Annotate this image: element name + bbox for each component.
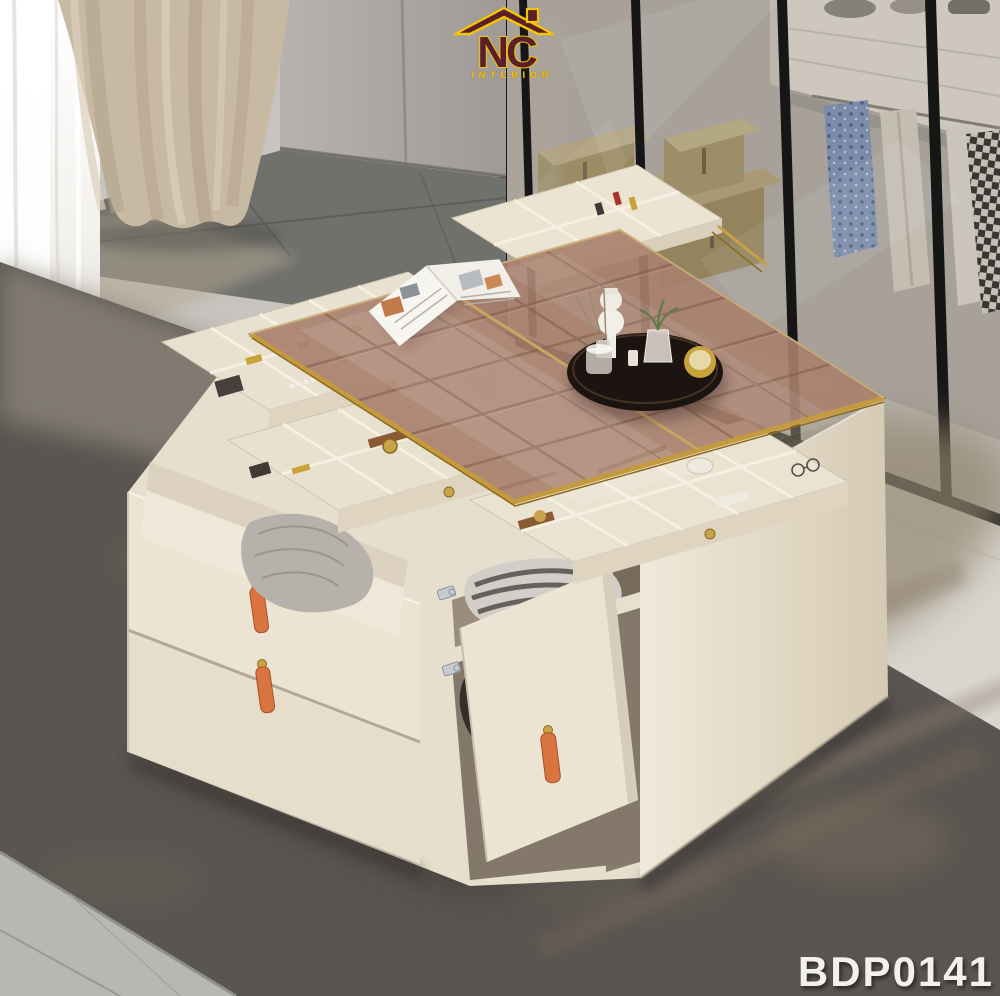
scene-svg <box>0 0 1000 996</box>
gold-knob <box>705 529 715 539</box>
product-photo: NC INTERIOR BDP0141 <box>0 0 1000 996</box>
watch-face <box>383 439 397 453</box>
nc-logo-house-icon: NC <box>451 4 569 72</box>
small-bottle <box>628 350 638 366</box>
logo-text: NC <box>477 28 537 72</box>
gold-knob <box>444 487 454 497</box>
product-code: BDP0141 <box>798 948 994 996</box>
crystal-vase <box>644 330 672 362</box>
logo: NC INTERIOR <box>448 4 572 81</box>
watch-face <box>534 510 546 522</box>
logo-subtext: INTERIOR <box>448 70 572 81</box>
